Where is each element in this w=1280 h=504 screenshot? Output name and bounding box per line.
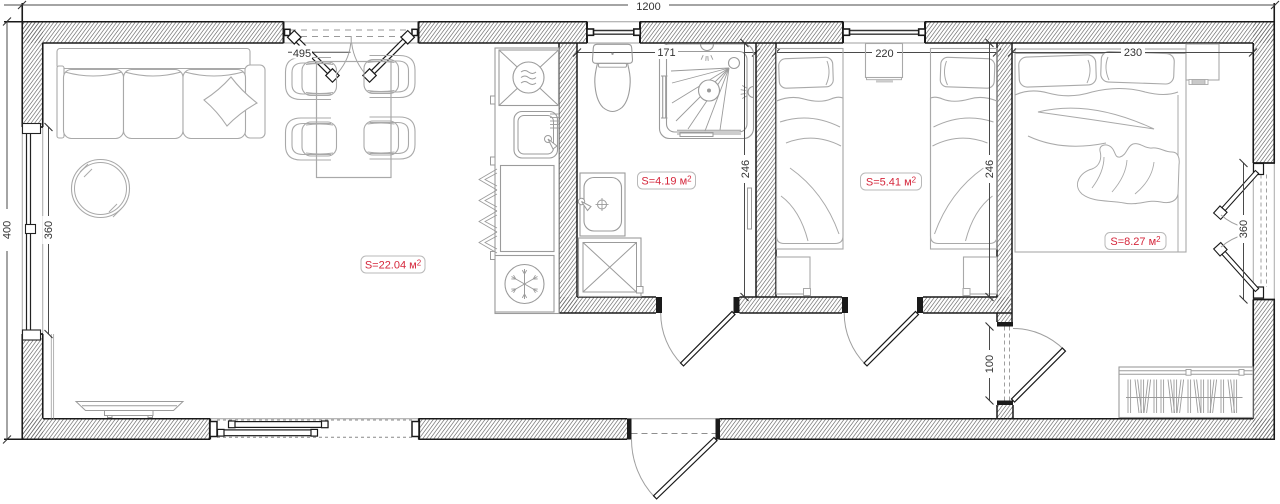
svg-text:495: 495 [293, 48, 311, 60]
svg-text:171: 171 [657, 47, 675, 59]
svg-text:360: 360 [43, 221, 55, 239]
svg-text:360: 360 [1238, 220, 1250, 238]
svg-text:246: 246 [740, 160, 752, 178]
svg-text:230: 230 [1124, 47, 1142, 59]
svg-text:246: 246 [984, 160, 996, 178]
svg-text:220: 220 [875, 48, 893, 60]
svg-text:S=4.19 м2: S=4.19 м2 [641, 175, 692, 188]
svg-text:S=8.27 м2: S=8.27 м2 [1110, 235, 1161, 248]
svg-text:S=5.41 м2: S=5.41 м2 [866, 176, 917, 189]
svg-text:S=22.04 м2: S=22.04 м2 [365, 259, 422, 272]
svg-text:1200: 1200 [636, 1, 660, 13]
svg-text:100: 100 [984, 355, 996, 373]
svg-text:400: 400 [2, 221, 14, 239]
